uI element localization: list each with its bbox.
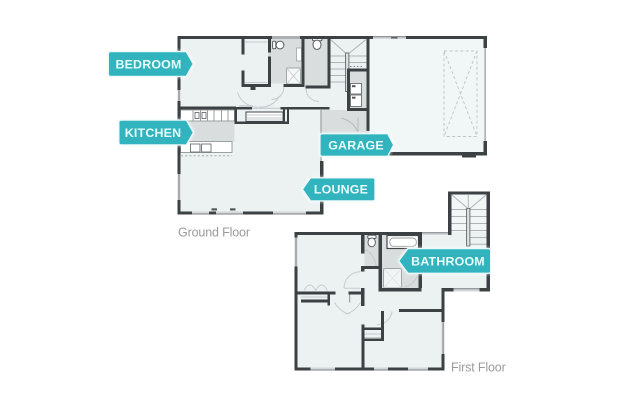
svg-text:BATHROOM: BATHROOM — [411, 254, 485, 268]
svg-text:GARAGE: GARAGE — [328, 138, 384, 152]
svg-text:Ground Floor: Ground Floor — [178, 226, 250, 240]
svg-text:First Floor: First Floor — [451, 361, 506, 375]
svg-text:KITCHEN: KITCHEN — [125, 126, 181, 140]
svg-text:LOUNGE: LOUNGE — [314, 183, 368, 197]
svg-text:BEDROOM: BEDROOM — [115, 57, 181, 71]
